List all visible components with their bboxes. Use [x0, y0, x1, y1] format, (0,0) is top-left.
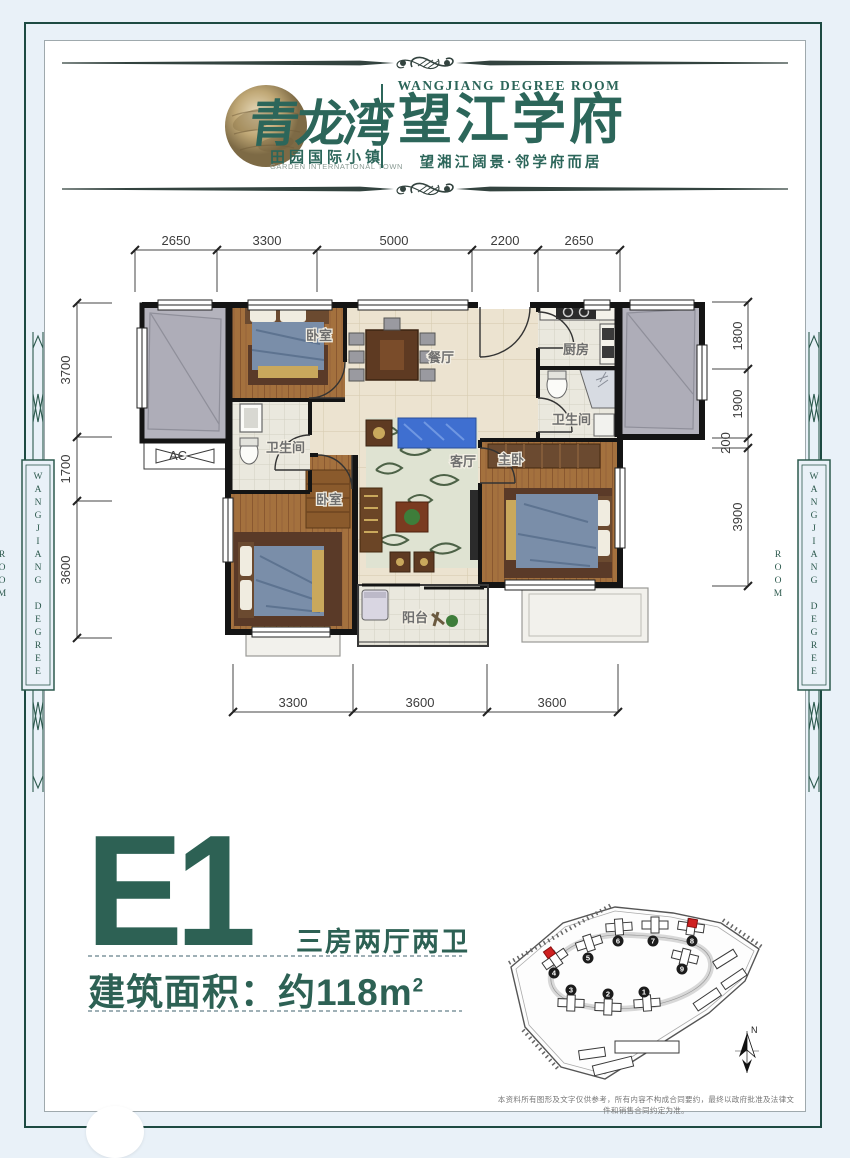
dimension-bottom: 3300 3600 3600 [229, 664, 622, 716]
unit-area-text: 建筑面积：约118m [88, 972, 413, 1013]
brand-subtitle-en: GARDEN INTERNATIONAL TOWN [270, 162, 403, 171]
label-living: 客厅 [450, 454, 476, 469]
ac-platform: AC [144, 443, 226, 469]
top-flourish-ornament [60, 50, 790, 76]
svg-text:5: 5 [586, 954, 590, 963]
terrace-left [142, 305, 228, 441]
label-balcony: 阳台 [402, 610, 428, 625]
window-terrace-right-side [697, 345, 707, 400]
svg-text:1900: 1900 [730, 390, 745, 419]
left-banner-text: WANGJIANG DEGREE ROOM [20, 468, 56, 684]
svg-text:3600: 3600 [406, 695, 435, 710]
svg-text:200: 200 [718, 432, 733, 454]
svg-text:5000: 5000 [380, 233, 409, 248]
svg-text:2650: 2650 [162, 233, 191, 248]
ac-label: AC [169, 448, 187, 463]
svg-text:3900: 3900 [730, 503, 745, 532]
window-kitchen [584, 300, 610, 310]
label-bedroom-top: 卧室 [306, 328, 332, 343]
svg-text:3300: 3300 [279, 695, 308, 710]
bed-icon-bedroom-top [245, 306, 329, 385]
svg-text:2: 2 [606, 990, 610, 999]
svg-text:3300: 3300 [253, 233, 282, 248]
dashed-divider-top [88, 955, 462, 957]
window-bedroom-bottom [252, 627, 330, 637]
compass-label: N [751, 1025, 758, 1035]
label-bedroom-bottom: 卧室 [316, 492, 342, 507]
right-banner-text: WANGJIANG DEGREE ROOM [796, 468, 832, 684]
svg-text:3600: 3600 [60, 556, 73, 585]
svg-text:9: 9 [680, 965, 684, 974]
svg-text:3: 3 [569, 986, 573, 995]
label-bathroom-left: 卫生间 [266, 440, 305, 455]
highlighted-unit-east [687, 918, 697, 927]
header-bottom-flourish [60, 176, 790, 202]
svg-text:1: 1 [642, 988, 646, 997]
svg-text:2650: 2650 [565, 233, 594, 248]
svg-text:2200: 2200 [491, 233, 520, 248]
terrace-right [620, 305, 702, 437]
left-vertical-banner: WANGJIANG DEGREE ROOM [20, 332, 56, 792]
unit-layout: 三房两厅两卫 [296, 920, 470, 959]
window-bedroom-bottom-side [223, 498, 233, 562]
window-bedroom-top [248, 300, 332, 310]
label-bathroom-right: 卫生间 [552, 412, 591, 427]
svg-text:6: 6 [616, 937, 620, 946]
svg-text:8: 8 [690, 937, 694, 946]
dimension-left: 3700 1700 3600 [60, 299, 112, 642]
unit-code: E1 [86, 812, 249, 970]
svg-text:3700: 3700 [60, 356, 73, 385]
disclaimer-text: 本资料所有图形及文字仅供参考，所有内容不构成合同要约，最终以政府批准及法律文件和… [495, 1094, 797, 1116]
entry-door-gap [478, 301, 530, 309]
project-title-cn: 望江学府 [394, 92, 630, 149]
window-dining [358, 300, 468, 310]
svg-text:7: 7 [651, 937, 655, 946]
floor-plan: AC [60, 225, 800, 745]
compass-icon: N [735, 1025, 759, 1073]
label-kitchen: 厨房 [563, 342, 589, 357]
svg-text:3600: 3600 [538, 695, 567, 710]
header-divider [381, 84, 383, 168]
unit-area: 建筑面积：约118m2 [88, 962, 424, 1016]
label-master: 主卧 [498, 452, 524, 467]
window-master-side [615, 468, 625, 548]
svg-text:1700: 1700 [60, 455, 73, 484]
corner-blob [86, 1106, 144, 1158]
label-dining: 餐厅 [427, 350, 454, 365]
svg-text:1800: 1800 [730, 322, 745, 351]
poster-page: 青龙湾 田园国际小镇 GARDEN INTERNATIONAL TOWN WAN… [0, 0, 850, 1154]
living-room-furniture [360, 418, 478, 572]
unit-area-sup: 2 [413, 976, 425, 997]
dimension-top: 2650 3300 5000 2200 2650 [131, 233, 624, 292]
dimension-right: 1800 1900 200 3900 [712, 298, 752, 590]
project-tagline: 望湘江阔景·邻学府而居 [392, 151, 630, 172]
window-terrace-left-side [137, 328, 147, 408]
site-plan-map: 1 2 3 4 5 6 7 8 9 N [495, 883, 797, 1091]
window-terrace-right-top [630, 300, 694, 310]
right-vertical-banner: WANGJIANG DEGREE ROOM [796, 332, 832, 792]
window-master-bottom [505, 580, 595, 590]
dashed-divider-bottom [88, 1010, 462, 1012]
window-top-terrace [158, 300, 212, 310]
